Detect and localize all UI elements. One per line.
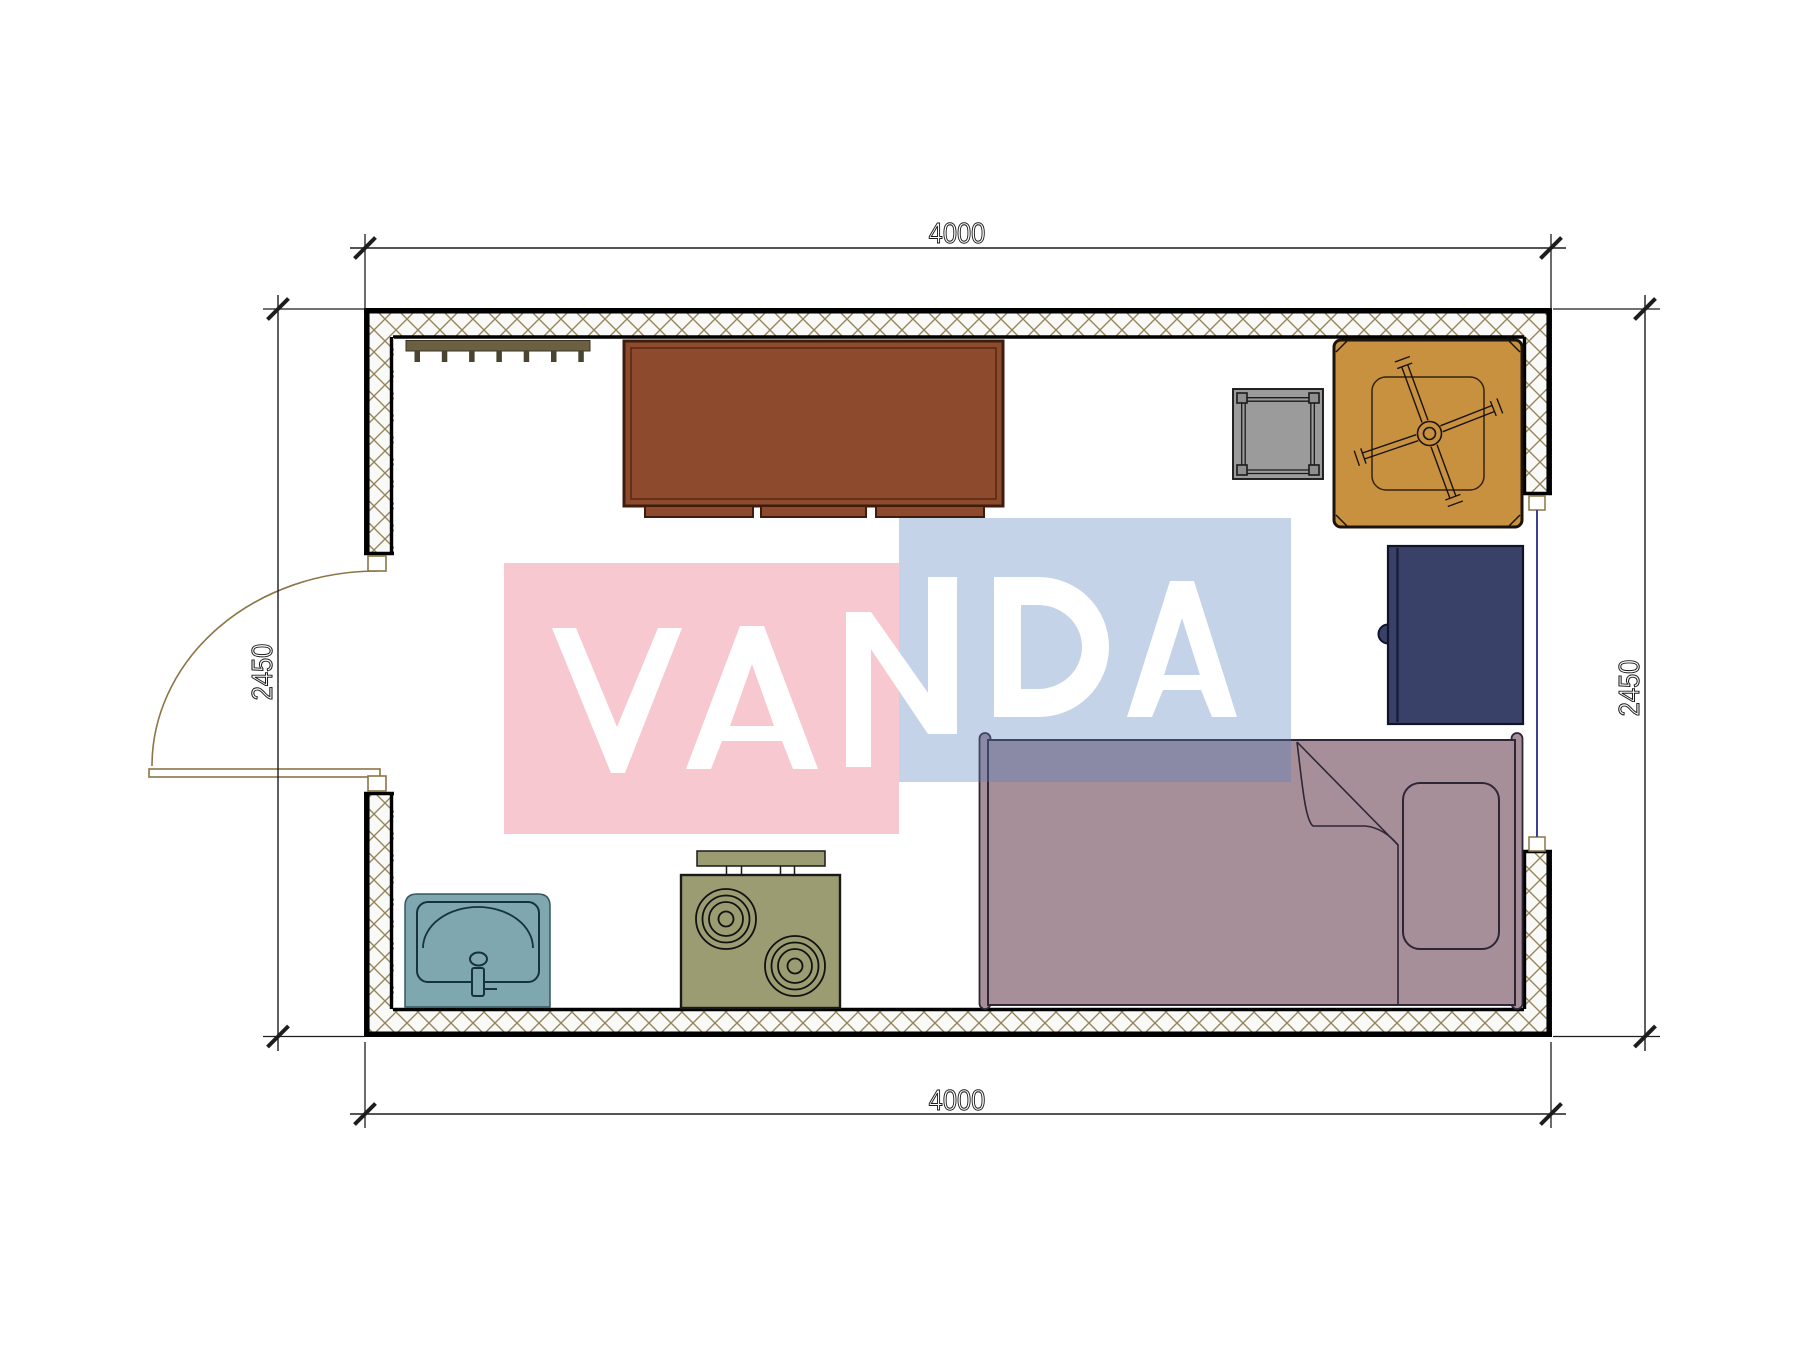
svg-text:2450: 2450 xyxy=(1612,660,1645,717)
svg-text:4000: 4000 xyxy=(929,1083,986,1116)
svg-text:2450: 2450 xyxy=(245,644,278,701)
svg-text:4000: 4000 xyxy=(929,216,986,249)
